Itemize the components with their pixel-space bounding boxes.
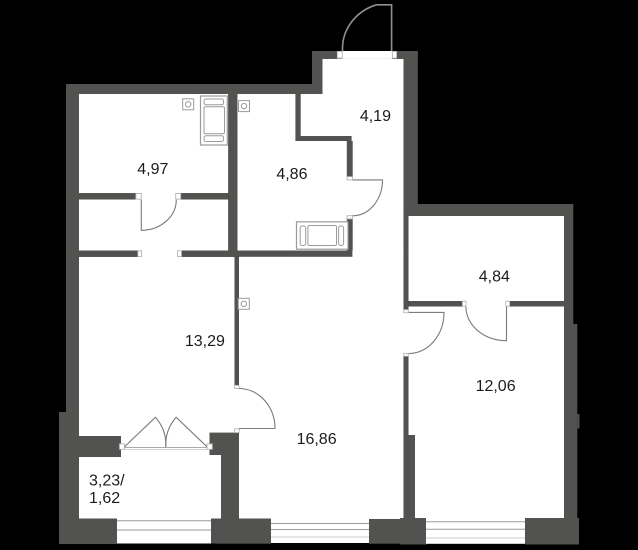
svg-text:4,97: 4,97 xyxy=(137,161,168,178)
svg-text:4,86: 4,86 xyxy=(276,166,307,183)
svg-text:16,86: 16,86 xyxy=(297,431,337,448)
svg-text:3,23/: 3,23/ xyxy=(89,473,125,490)
svg-text:1,62: 1,62 xyxy=(89,490,120,507)
svg-text:13,29: 13,29 xyxy=(185,333,225,350)
svg-text:4,84: 4,84 xyxy=(479,269,510,286)
svg-text:4,19: 4,19 xyxy=(360,108,391,125)
svg-text:12,06: 12,06 xyxy=(476,378,516,395)
